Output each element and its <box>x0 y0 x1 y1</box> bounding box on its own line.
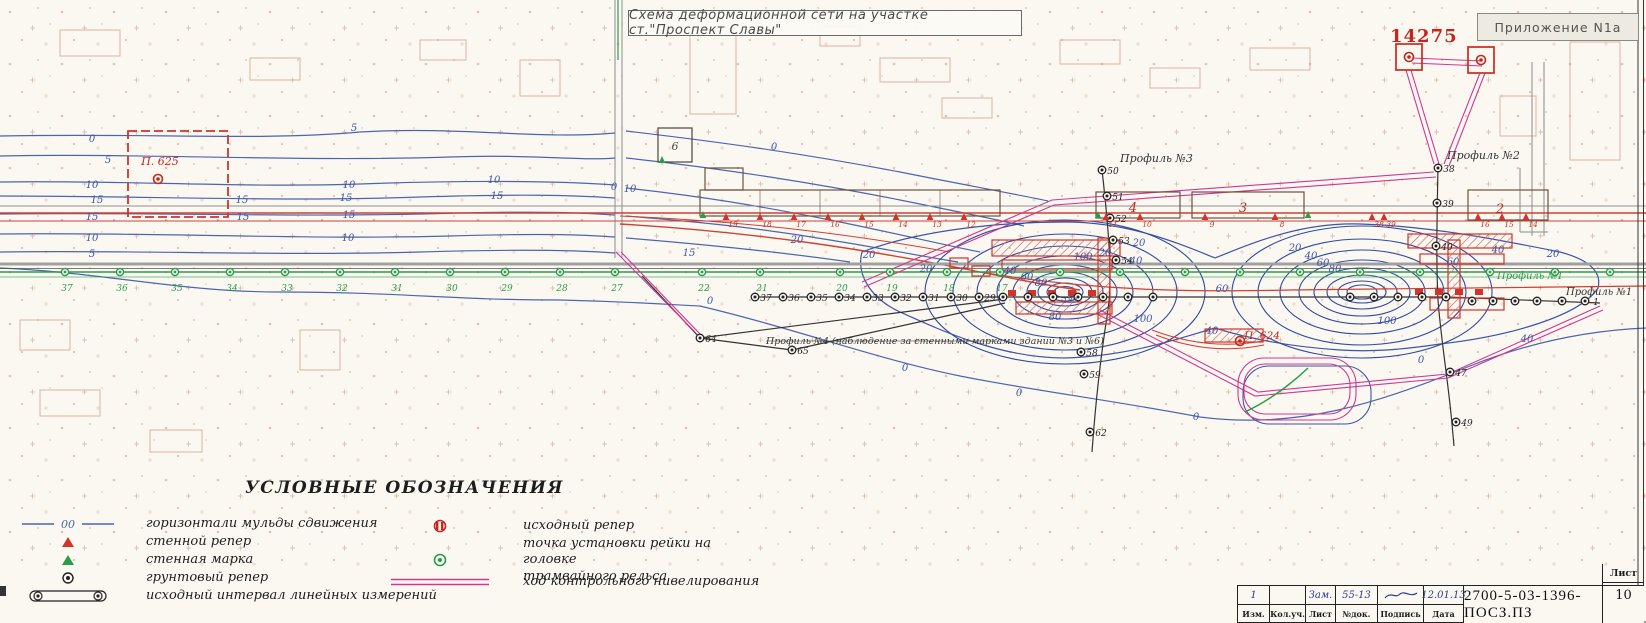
map-label: 0 <box>611 182 618 193</box>
map-label: 30 <box>446 284 458 294</box>
map-label: 15 <box>683 248 696 259</box>
legend-item-wall-mark: стенная марка <box>18 552 253 568</box>
map-label: 60 <box>1447 257 1460 268</box>
legend-item-interval: исходный интервал линейных измерений <box>18 588 437 604</box>
ground-benchmark-dot <box>1536 300 1539 303</box>
appendix-box: Приложение N1а <box>1477 13 1639 41</box>
legend-item-source-benchmark: исходный репер <box>385 518 634 534</box>
rail-point-dot <box>1299 271 1302 274</box>
map-label: 5 <box>89 249 95 260</box>
ground-benchmark-dot <box>1492 300 1495 303</box>
map-label: 0 <box>1016 388 1023 399</box>
legend-item-ground-benchmark: грунтовый репер <box>18 570 268 586</box>
map-label: 49 <box>1460 419 1473 429</box>
map-label: 15 <box>237 212 250 223</box>
map-label: 53 <box>1118 237 1130 247</box>
rail-point-dot <box>229 271 232 274</box>
rail-point-dot <box>999 271 1002 274</box>
map-label: 13 <box>932 220 942 229</box>
interval-bar-icon <box>18 588 118 604</box>
legend-label: горизонтали мульды сдвижения <box>146 516 378 532</box>
map-label: 38 <box>1443 165 1455 175</box>
rail-point-dot <box>1119 271 1122 274</box>
legend-item-contours: 00 горизонтали мульды сдвижения <box>18 516 378 532</box>
map-label: 6 <box>672 140 679 153</box>
map-label: 40 <box>1003 266 1017 277</box>
map-label: 20 <box>919 264 933 275</box>
document-number: 2700-5-03-1396-ПОСЗ.ПЗ <box>1464 586 1602 623</box>
map-label: 34 <box>226 284 238 294</box>
ground-benchmark-dot <box>978 296 981 299</box>
ground-benchmark-dot <box>1445 296 1448 299</box>
map-label: 10 <box>624 184 637 195</box>
map-label: 34 <box>844 294 856 304</box>
ground-benchmark-dot <box>1373 296 1376 299</box>
ground-benchmark-dot <box>894 296 897 299</box>
source-benchmark-icon <box>385 519 495 533</box>
map-label: 37 <box>760 294 772 304</box>
ground-benchmark-dot <box>1397 296 1400 299</box>
sheet-number: 10 <box>1603 583 1644 607</box>
revision-koluch <box>1270 586 1306 605</box>
map-label: 100 <box>1377 316 1397 327</box>
map-label: 16 <box>830 220 840 229</box>
map-label: 31 <box>928 294 939 304</box>
map-label: 40 <box>1520 334 1534 345</box>
map-label: 10 <box>342 233 355 244</box>
col-koluch: Кол.уч. <box>1270 605 1306 623</box>
map-title: Схема деформационной сети на участке ст.… <box>629 8 1021 38</box>
map-label: 15 <box>343 210 356 221</box>
rail-point-dot <box>839 271 842 274</box>
header-row: Изм. Кол.уч. Лист №док. Подпись Дата <box>1238 605 1464 623</box>
map-label: 18 <box>943 284 955 294</box>
map-label: 10 <box>86 180 99 191</box>
rail-point-dot <box>339 271 342 274</box>
map-label: 100 <box>1073 252 1093 263</box>
map-label: 10 <box>1142 220 1152 229</box>
ground-benchmark-dot <box>1435 245 1438 248</box>
ground-benchmark-dot <box>922 296 925 299</box>
magenta-double-line-icon <box>385 576 495 588</box>
rail-point-dot <box>1239 271 1242 274</box>
title-block: 1 Зам. 55-13 12.01.13 Изм. Кол.уч. Лист … <box>1237 585 1644 623</box>
map-label: 59 <box>1089 371 1101 381</box>
rail-point-dot <box>119 271 122 274</box>
ground-benchmark-dot <box>838 296 841 299</box>
rail-point-dot <box>946 271 949 274</box>
map-label: 10 <box>343 180 356 191</box>
rail-point-dot <box>759 271 762 274</box>
map-label: 14 <box>1528 220 1538 229</box>
map-label: 51 <box>1112 193 1123 203</box>
ground-benchmark-dot <box>1152 296 1155 299</box>
ground-benchmark-dot <box>1112 239 1115 242</box>
map-label: 20 <box>835 284 848 294</box>
ground-benchmark-dot <box>1102 296 1105 299</box>
map-label: 5 <box>105 155 111 166</box>
map-label: 21 <box>755 284 767 294</box>
map-label: 37 <box>61 284 73 294</box>
map-label: 15 <box>1504 220 1514 229</box>
map-label: 18 <box>762 220 772 229</box>
ground-benchmark-dot <box>866 296 869 299</box>
map-label: 20 <box>1288 243 1302 254</box>
map-title-box: Схема деформационной сети на участке ст.… <box>628 10 1022 36</box>
ground-benchmark-dot <box>1106 195 1109 198</box>
source-benchmark-dot <box>1407 55 1411 59</box>
map-label: 15 <box>236 195 249 206</box>
map-label: 60 <box>1021 272 1034 283</box>
col-data: Дата <box>1424 605 1464 623</box>
map-label: 80 <box>1329 264 1342 275</box>
sheet-label: Лист <box>1603 564 1644 583</box>
ground-benchmark-dot <box>782 296 785 299</box>
ground-benchmark-dot <box>1089 431 1092 434</box>
legend-item-leveling-route: ход контрольного нивелирования <box>385 574 759 590</box>
legend-label: стенная марка <box>146 552 253 568</box>
ground-benchmark-dot <box>1027 296 1030 299</box>
map-label: Профиль №3 <box>1119 152 1193 165</box>
map-label: Профиль №4 (наблюдение за стенными марка… <box>765 336 1104 347</box>
map-label: 58 <box>1086 349 1098 359</box>
map-label: 29 <box>500 284 513 294</box>
revision-izm: 1 <box>1238 586 1270 605</box>
rail-point-dot <box>614 271 617 274</box>
map-label: 15 <box>864 220 874 229</box>
legend-label: исходный репер <box>523 518 634 534</box>
map-label: 15 <box>91 195 104 206</box>
rail-point-dot <box>64 271 67 274</box>
legend-item-wall-benchmark: стенной репер <box>18 534 251 550</box>
revision-row: 1 Зам. 55-13 12.01.13 <box>1238 586 1464 605</box>
legend-label: исходный интервал линейных измерений <box>146 588 437 604</box>
map-label: П. 624 <box>1243 330 1280 342</box>
ground-benchmark-dot <box>1449 371 1452 374</box>
rail-point-dot <box>174 271 177 274</box>
ground-benchmark-dot <box>699 337 702 340</box>
map-label: 14 <box>898 220 908 229</box>
map-label: 3 <box>1239 201 1247 216</box>
rail-point-dot <box>1489 271 1492 274</box>
map-label: 20 <box>790 235 804 246</box>
ground-benchmark-dot <box>1437 167 1440 170</box>
map-label: 19 <box>886 284 898 294</box>
map-label: 4 <box>1128 201 1137 216</box>
map-label: 36 <box>788 294 800 304</box>
rail-point-dot <box>559 271 562 274</box>
map-label: 35 <box>171 284 183 294</box>
contour-sample-text: 00 <box>61 518 75 531</box>
map-label: 0 <box>771 142 778 153</box>
ground-benchmark-dot <box>1471 300 1474 303</box>
map-label: 17 <box>796 220 806 229</box>
map-label: 0 <box>707 296 714 307</box>
map-label: 39 <box>1442 200 1454 210</box>
map-label: 35 <box>816 294 828 304</box>
legend-title: УСЛОВНЫЕ ОБОЗНАЧЕНИЯ <box>245 478 564 498</box>
map-label: 20 <box>1132 238 1146 249</box>
revision-signature <box>1378 586 1424 605</box>
map-label: 100 <box>1133 314 1153 325</box>
ground-benchmark-dot <box>950 296 953 299</box>
map-label: 33 <box>281 284 293 294</box>
map-label: 20 <box>1546 249 1560 260</box>
map-label: Профиль №1 <box>1496 271 1563 282</box>
map-label: 180 <box>1063 296 1078 305</box>
map-label: 62 <box>1095 429 1107 439</box>
map-label: 0 <box>1193 412 1200 423</box>
map-label: 22 <box>697 284 710 294</box>
map-label: 27 <box>610 284 623 294</box>
map-label: 2 <box>1495 202 1504 217</box>
map-label: 0 <box>1418 355 1425 366</box>
map-label: 17 <box>996 284 1008 294</box>
rail-point-dot <box>449 271 452 274</box>
source-benchmark-dot <box>1479 58 1483 62</box>
revision-date: 12.01.13 <box>1424 586 1464 605</box>
drawing-sheet: Профиль №3Профиль №2Профиль №1Профиль №1… <box>0 0 1646 623</box>
legend-label: стенной репер <box>146 534 251 550</box>
ground-benchmark-dot <box>1561 300 1564 303</box>
rail-point-icon <box>385 553 495 567</box>
contour-line-icon: 00 <box>18 517 118 531</box>
ground-benchmark-dot <box>791 349 794 352</box>
map-label: 32 <box>336 284 348 294</box>
map-label: 0 <box>89 134 96 145</box>
map-label: 30 <box>956 294 968 304</box>
rail-point-dot <box>1059 271 1062 274</box>
ground-benchmark-dot <box>1421 296 1424 299</box>
ground-benchmark-dot <box>1052 296 1055 299</box>
map-label: Профиль №2 <box>1446 149 1520 162</box>
map-label: 15 <box>86 212 99 223</box>
map-label: 64 <box>705 335 717 345</box>
col-list: Лист <box>1306 605 1336 623</box>
ground-benchmark-dot <box>1514 300 1517 303</box>
map-label: 1 <box>1593 298 1599 308</box>
ground-benchmark-dot <box>1080 351 1083 354</box>
map-label: Профиль №1 <box>1565 287 1632 298</box>
map-label: 50 <box>1107 167 1119 177</box>
rail-point-dot <box>1184 271 1187 274</box>
ground-benchmark-dot <box>1002 296 1005 299</box>
ground-benchmark-dot <box>1436 202 1439 205</box>
ground-benchmark-dot <box>754 296 757 299</box>
ground-benchmark-dot <box>1584 300 1587 303</box>
rail-point-dot <box>889 271 892 274</box>
benchmark-number-label: 14275 <box>1390 26 1458 47</box>
ground-benchmark-dot <box>1455 421 1458 424</box>
col-ndok: №док. <box>1336 605 1378 623</box>
map-label: 15 <box>491 191 504 202</box>
ground-benchmark-dot <box>810 296 813 299</box>
map-label: 31 <box>391 284 402 294</box>
map-label: 20 <box>1098 248 1112 259</box>
col-podpis: Подпись <box>1378 605 1424 623</box>
map-label: 40 <box>1205 326 1219 337</box>
map-label: 36 <box>116 284 128 294</box>
revision-list: Зам. <box>1306 586 1336 605</box>
source-benchmark-dot <box>1238 339 1242 343</box>
map-label: 80 <box>1035 278 1048 289</box>
source-benchmark-dot <box>156 177 160 181</box>
legend-label: ход контрольного нивелирования <box>523 574 759 590</box>
map-label: 9 <box>1210 220 1215 229</box>
map-label: 0 <box>902 363 909 374</box>
ground-benchmark-icon <box>18 571 118 585</box>
col-izm: Изм. <box>1238 605 1270 623</box>
red-triangle-icon <box>18 535 118 549</box>
map-label: 15 <box>340 193 353 204</box>
ground-benchmark-dot <box>1101 169 1104 172</box>
map-label: 10 <box>86 233 99 244</box>
map-label: 19 <box>728 220 738 229</box>
ground-benchmark-dot <box>1083 373 1086 376</box>
legend-label: грунтовый репер <box>146 570 268 586</box>
map-label: 20 <box>862 250 876 261</box>
rail-point-dot <box>1419 271 1422 274</box>
ground-benchmark-dot <box>1115 259 1118 262</box>
map-label: 10 <box>488 175 501 186</box>
legend: УСЛОВНЫЕ ОБОЗНАЧЕНИЯ 00 горизонтали муль… <box>0 470 760 620</box>
map-label: 33 <box>872 294 884 304</box>
rail-point-dot <box>284 271 287 274</box>
map-label: 65 <box>797 347 809 357</box>
map-label: 39 <box>1386 220 1396 229</box>
map-label: 12 <box>966 220 976 229</box>
map-label: 38 <box>1374 220 1384 229</box>
map-label: 29 <box>983 294 996 304</box>
map-label: 40 <box>1491 245 1505 256</box>
sheet-number-box: Лист 10 <box>1602 564 1644 623</box>
green-triangle-icon <box>18 553 118 567</box>
map-label: 47 <box>1454 369 1467 379</box>
rail-point-dot <box>504 271 507 274</box>
map-label: П. 625 <box>140 155 179 168</box>
map-label: 54 <box>1121 257 1133 267</box>
rail-point-dot <box>394 271 397 274</box>
appendix-label: Приложение N1а <box>1495 20 1622 35</box>
map-label: 40 <box>1440 243 1453 253</box>
rail-point-dot <box>701 271 704 274</box>
map-label: 60 <box>1216 284 1229 295</box>
ground-benchmark-dot <box>1127 296 1130 299</box>
map-label: 80 <box>1049 312 1062 323</box>
map-label: 16 <box>1480 220 1490 229</box>
revision-doc: 55-13 <box>1336 586 1378 605</box>
rail-point-dot <box>1359 271 1362 274</box>
ground-benchmark-dot <box>1349 296 1352 299</box>
map-label: 28 <box>555 284 568 294</box>
rail-point-dot <box>1609 271 1612 274</box>
map-label: 5 <box>351 123 357 134</box>
map-label: 8 <box>1280 220 1285 229</box>
map-label: 32 <box>900 294 912 304</box>
map-label: 11 <box>1108 220 1118 229</box>
